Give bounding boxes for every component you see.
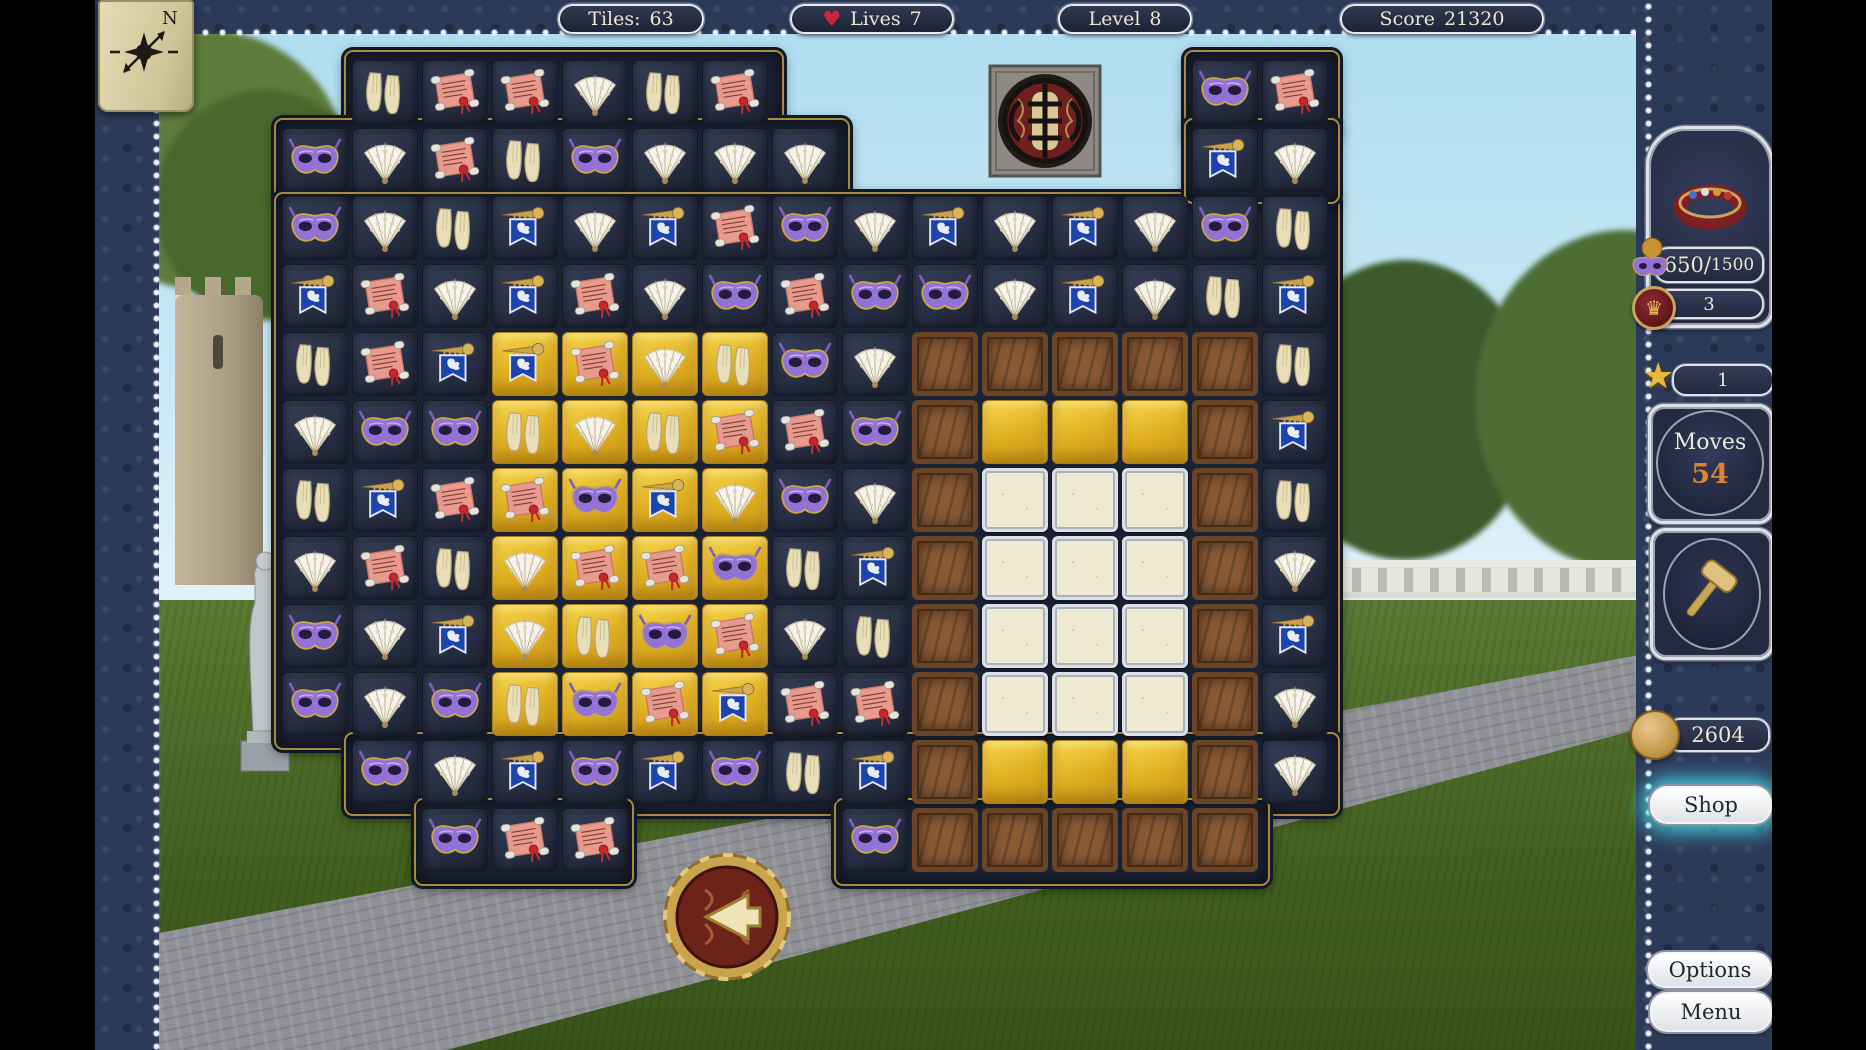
tile-red-scroll[interactable] bbox=[352, 264, 418, 328]
tile-purple-mask[interactable] bbox=[702, 740, 768, 804]
tile-red-scroll[interactable] bbox=[772, 400, 838, 464]
tile-lace-fan[interactable] bbox=[632, 128, 698, 192]
tile-lace-fan[interactable] bbox=[352, 604, 418, 668]
tile-stone-block bbox=[1122, 672, 1188, 736]
tile-lion-banner-horn[interactable] bbox=[492, 264, 558, 328]
tile-lace-fan[interactable] bbox=[352, 672, 418, 736]
tile-gloves[interactable] bbox=[632, 400, 698, 464]
tile-lace-fan[interactable] bbox=[702, 468, 768, 532]
tile-gloves[interactable] bbox=[1262, 196, 1328, 260]
tile-purple-mask[interactable] bbox=[912, 264, 978, 328]
tile-lion-banner-horn[interactable] bbox=[702, 672, 768, 736]
tile-wooden-crate[interactable] bbox=[1192, 604, 1258, 668]
tile-purple-mask[interactable] bbox=[842, 808, 908, 872]
tile-wooden-crate[interactable] bbox=[1122, 332, 1188, 396]
right-black-bar bbox=[1772, 0, 1866, 1050]
tile-red-scroll[interactable] bbox=[492, 60, 558, 124]
tile-lion-banner-horn[interactable] bbox=[912, 196, 978, 260]
tile-gloves[interactable] bbox=[352, 60, 418, 124]
coin-value: 2604 bbox=[1691, 723, 1744, 747]
tile-lion-banner-horn[interactable] bbox=[492, 332, 558, 396]
collection-badge-value: 3 bbox=[1703, 294, 1714, 315]
tile-gloves[interactable] bbox=[282, 332, 348, 396]
coin-counter: 2604 bbox=[1630, 708, 1772, 758]
tile-wooden-crate[interactable] bbox=[1192, 468, 1258, 532]
tile-gold-tile-empty bbox=[1122, 740, 1188, 804]
tile-red-scroll[interactable] bbox=[702, 196, 768, 260]
tile-wooden-crate[interactable] bbox=[1192, 672, 1258, 736]
hammer-icon bbox=[1678, 558, 1742, 628]
tile-purple-mask[interactable] bbox=[282, 672, 348, 736]
tile-red-scroll[interactable] bbox=[632, 672, 698, 736]
tile-wooden-crate[interactable] bbox=[1192, 740, 1258, 804]
tile-red-scroll[interactable] bbox=[562, 808, 628, 872]
tile-lion-banner-horn[interactable] bbox=[422, 332, 488, 396]
tile-red-scroll[interactable] bbox=[562, 332, 628, 396]
tile-purple-mask[interactable] bbox=[772, 332, 838, 396]
tile-lace-fan[interactable] bbox=[1262, 536, 1328, 600]
tile-wooden-crate[interactable] bbox=[912, 468, 978, 532]
menu-button[interactable]: Menu bbox=[1650, 992, 1772, 1032]
tile-lion-banner-horn[interactable] bbox=[1192, 128, 1258, 192]
tile-purple-mask[interactable] bbox=[1192, 196, 1258, 260]
star-icon: ★ bbox=[1642, 356, 1674, 397]
tile-red-scroll[interactable] bbox=[632, 536, 698, 600]
tile-red-scroll[interactable] bbox=[422, 128, 488, 192]
bracelet-icon bbox=[1673, 173, 1747, 237]
tile-wooden-crate[interactable] bbox=[1122, 808, 1188, 872]
tile-lion-banner-horn[interactable] bbox=[352, 468, 418, 532]
tile-purple-mask[interactable] bbox=[772, 196, 838, 260]
tile-wooden-crate[interactable] bbox=[1192, 536, 1258, 600]
level-emblem bbox=[988, 64, 1102, 178]
tile-lace-fan[interactable] bbox=[632, 332, 698, 396]
tile-wooden-crate[interactable] bbox=[1192, 332, 1258, 396]
tile-lion-banner-horn[interactable] bbox=[632, 196, 698, 260]
tile-gold-tile-empty bbox=[982, 740, 1048, 804]
tile-stone-block bbox=[1052, 672, 1118, 736]
tile-lion-banner-horn[interactable] bbox=[492, 740, 558, 804]
tile-lace-fan[interactable] bbox=[282, 400, 348, 464]
tile-red-scroll[interactable] bbox=[352, 536, 418, 600]
tile-gloves[interactable] bbox=[1192, 264, 1258, 328]
tile-lion-banner-horn[interactable] bbox=[1052, 264, 1118, 328]
shop-label: Shop bbox=[1684, 793, 1738, 817]
tile-stone-block bbox=[982, 536, 1048, 600]
moves-panel: Moves 54 bbox=[1648, 404, 1774, 524]
tile-lion-banner-horn[interactable] bbox=[422, 604, 488, 668]
tile-wooden-crate[interactable] bbox=[1192, 400, 1258, 464]
tile-lace-fan[interactable] bbox=[842, 332, 908, 396]
tile-lion-banner-horn[interactable] bbox=[1262, 264, 1328, 328]
star-counter: 1 ★ bbox=[1642, 358, 1772, 400]
tile-stone-block bbox=[1052, 604, 1118, 668]
tile-lace-fan[interactable] bbox=[1262, 740, 1328, 804]
tile-red-scroll[interactable] bbox=[842, 672, 908, 736]
star-count-value: 1 bbox=[1717, 370, 1728, 391]
tile-lace-fan[interactable] bbox=[1122, 264, 1188, 328]
tile-lace-fan[interactable] bbox=[282, 536, 348, 600]
tile-gloves[interactable] bbox=[492, 128, 558, 192]
tile-gloves[interactable] bbox=[422, 196, 488, 260]
tile-lace-fan[interactable] bbox=[772, 604, 838, 668]
tile-lion-banner-horn[interactable] bbox=[492, 196, 558, 260]
tile-lion-banner-horn[interactable] bbox=[1052, 196, 1118, 260]
tile-gloves[interactable] bbox=[282, 468, 348, 532]
tile-lace-fan[interactable] bbox=[492, 604, 558, 668]
tile-gloves[interactable] bbox=[1262, 468, 1328, 532]
tile-purple-mask[interactable] bbox=[562, 672, 628, 736]
tile-lace-fan[interactable] bbox=[982, 196, 1048, 260]
tile-red-scroll[interactable] bbox=[702, 604, 768, 668]
tile-stone-block bbox=[982, 468, 1048, 532]
tile-wooden-crate[interactable] bbox=[982, 332, 1048, 396]
tile-stone-block bbox=[1122, 536, 1188, 600]
tile-stone-block bbox=[1122, 604, 1188, 668]
options-button[interactable]: Options bbox=[1648, 952, 1772, 988]
tile-stone-block bbox=[1122, 468, 1188, 532]
menu-label: Menu bbox=[1681, 1000, 1742, 1024]
tile-red-scroll[interactable] bbox=[492, 808, 558, 872]
tile-lace-fan[interactable] bbox=[562, 60, 628, 124]
tile-gloves[interactable] bbox=[772, 536, 838, 600]
tile-wooden-crate[interactable] bbox=[912, 808, 978, 872]
tile-purple-mask[interactable] bbox=[562, 740, 628, 804]
tile-gloves[interactable] bbox=[842, 604, 908, 668]
tile-purple-mask[interactable] bbox=[772, 468, 838, 532]
tile-purple-mask[interactable] bbox=[842, 264, 908, 328]
tile-stone-block bbox=[1052, 468, 1118, 532]
tile-gold-tile-empty bbox=[1052, 400, 1118, 464]
tile-gloves[interactable] bbox=[422, 536, 488, 600]
hammer-oval bbox=[1663, 538, 1761, 650]
tile-red-scroll[interactable] bbox=[492, 468, 558, 532]
tile-lion-banner-horn[interactable] bbox=[632, 740, 698, 804]
collection-separator: / bbox=[1704, 253, 1711, 277]
tile-lace-fan[interactable] bbox=[702, 128, 768, 192]
tile-wooden-crate[interactable] bbox=[1052, 332, 1118, 396]
tile-purple-mask[interactable] bbox=[352, 740, 418, 804]
tile-gold-tile-empty bbox=[1122, 400, 1188, 464]
tile-purple-mask[interactable] bbox=[282, 128, 348, 192]
tile-wooden-crate[interactable] bbox=[912, 672, 978, 736]
tile-purple-mask[interactable] bbox=[422, 400, 488, 464]
tile-gloves[interactable] bbox=[492, 672, 558, 736]
tile-lion-banner-horn[interactable] bbox=[282, 264, 348, 328]
tile-lion-banner-horn[interactable] bbox=[842, 536, 908, 600]
collection-target: 1500 bbox=[1711, 255, 1754, 275]
tile-wooden-crate[interactable] bbox=[1052, 808, 1118, 872]
tile-gloves[interactable] bbox=[772, 740, 838, 804]
tile-purple-mask[interactable] bbox=[702, 264, 768, 328]
tile-gold-tile-empty bbox=[982, 400, 1048, 464]
tile-gold-tile-empty bbox=[1052, 740, 1118, 804]
options-label: Options bbox=[1669, 958, 1752, 982]
tile-purple-mask[interactable] bbox=[1192, 60, 1258, 124]
tile-lion-banner-horn[interactable] bbox=[842, 740, 908, 804]
left-black-bar bbox=[0, 0, 95, 1050]
tile-red-scroll[interactable] bbox=[562, 264, 628, 328]
coin-bar: 2604 bbox=[1666, 718, 1770, 752]
tile-red-scroll[interactable] bbox=[562, 536, 628, 600]
tile-lace-fan[interactable] bbox=[562, 196, 628, 260]
tile-purple-mask[interactable] bbox=[352, 400, 418, 464]
tile-purple-mask[interactable] bbox=[842, 400, 908, 464]
tile-lace-fan[interactable] bbox=[1262, 672, 1328, 736]
tile-red-scroll[interactable] bbox=[702, 400, 768, 464]
tile-wooden-crate[interactable] bbox=[912, 536, 978, 600]
tile-purple-mask[interactable] bbox=[702, 536, 768, 600]
tile-gloves[interactable] bbox=[562, 604, 628, 668]
tile-lace-fan[interactable] bbox=[1262, 128, 1328, 192]
tile-wooden-crate[interactable] bbox=[1192, 808, 1258, 872]
tile-purple-mask[interactable] bbox=[632, 604, 698, 668]
hammer-panel[interactable] bbox=[1650, 528, 1774, 660]
tile-purple-mask[interactable] bbox=[422, 672, 488, 736]
tile-purple-mask[interactable] bbox=[562, 468, 628, 532]
tile-lace-fan[interactable] bbox=[632, 264, 698, 328]
tile-lace-fan[interactable] bbox=[982, 264, 1048, 328]
tile-red-scroll[interactable] bbox=[1262, 60, 1328, 124]
coin-icon bbox=[1630, 710, 1680, 760]
tile-lace-fan[interactable] bbox=[352, 128, 418, 192]
star-count-bar: 1 bbox=[1672, 364, 1774, 396]
tile-gloves[interactable] bbox=[632, 60, 698, 124]
moves-circle: Moves 54 bbox=[1656, 410, 1764, 516]
tile-gloves[interactable] bbox=[1262, 332, 1328, 396]
tile-stone-block bbox=[982, 604, 1048, 668]
tile-wooden-crate[interactable] bbox=[982, 808, 1048, 872]
tile-wooden-crate[interactable] bbox=[912, 400, 978, 464]
tile-purple-mask[interactable] bbox=[282, 196, 348, 260]
tile-gloves[interactable] bbox=[492, 400, 558, 464]
tile-stone-block bbox=[1052, 536, 1118, 600]
tile-wooden-crate[interactable] bbox=[912, 740, 978, 804]
tile-purple-mask[interactable] bbox=[562, 128, 628, 192]
tile-lace-fan[interactable] bbox=[562, 400, 628, 464]
tile-lace-fan[interactable] bbox=[422, 740, 488, 804]
collection-progress: 650/1500 bbox=[1654, 247, 1764, 283]
moves-value: 54 bbox=[1658, 459, 1762, 490]
tile-purple-mask[interactable] bbox=[422, 808, 488, 872]
back-button[interactable] bbox=[660, 850, 794, 984]
moves-label: Moves bbox=[1658, 430, 1762, 455]
game-board bbox=[0, 0, 1866, 1050]
tile-gloves[interactable] bbox=[702, 332, 768, 396]
tile-red-scroll[interactable] bbox=[352, 332, 418, 396]
shop-button[interactable]: Shop bbox=[1650, 786, 1772, 824]
tile-red-scroll[interactable] bbox=[422, 60, 488, 124]
tile-wooden-crate[interactable] bbox=[912, 332, 978, 396]
tile-lace-fan[interactable] bbox=[422, 264, 488, 328]
tile-purple-mask[interactable] bbox=[282, 604, 348, 668]
tile-red-scroll[interactable] bbox=[772, 672, 838, 736]
tile-lion-banner-horn[interactable] bbox=[1262, 400, 1328, 464]
tile-lace-fan[interactable] bbox=[352, 196, 418, 260]
tile-lace-fan[interactable] bbox=[492, 536, 558, 600]
tile-lace-fan[interactable] bbox=[772, 128, 838, 192]
goal-mask-icon bbox=[1630, 236, 1670, 280]
tile-lion-banner-horn[interactable] bbox=[1262, 604, 1328, 668]
tile-red-scroll[interactable] bbox=[422, 468, 488, 532]
tile-red-scroll[interactable] bbox=[772, 264, 838, 328]
tile-lace-fan[interactable] bbox=[842, 196, 908, 260]
tile-lace-fan[interactable] bbox=[842, 468, 908, 532]
tile-lion-banner-horn[interactable] bbox=[632, 468, 698, 532]
crown-medallion-icon: ♛ bbox=[1632, 286, 1676, 330]
tile-wooden-crate[interactable] bbox=[912, 604, 978, 668]
tile-stone-block bbox=[982, 672, 1048, 736]
tile-red-scroll[interactable] bbox=[702, 60, 768, 124]
tile-lace-fan[interactable] bbox=[1122, 196, 1188, 260]
